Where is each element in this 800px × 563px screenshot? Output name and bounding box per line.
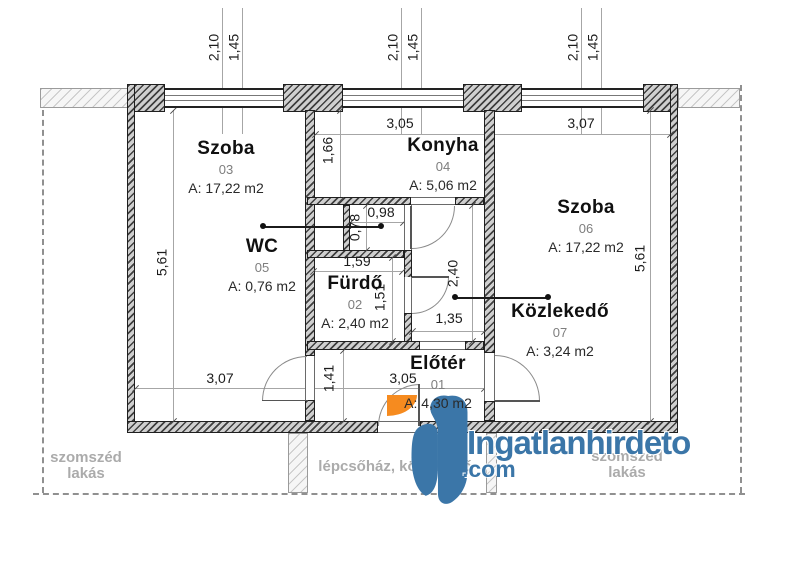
- room-name: Előtér: [404, 354, 472, 374]
- room-name: Közlekedő: [511, 302, 609, 322]
- room-name: Konyha: [407, 136, 478, 156]
- dimension-line: [650, 110, 651, 421]
- wall-right: [670, 84, 678, 433]
- label-neighbor-left: szomszéd lakás: [38, 450, 134, 482]
- window: [343, 88, 463, 108]
- dim-window-height: 1,45: [406, 24, 421, 72]
- dim-foyer-depth: 1,41: [322, 355, 337, 403]
- boundary-dashed: [740, 85, 742, 493]
- room-label-kozlekedo: Közlekedő 07 A: 3,24 m2: [511, 302, 609, 359]
- wall-interior: [465, 341, 484, 350]
- dim-bath-width: 1,59: [327, 253, 387, 269]
- dim-window-width: 2,10: [566, 24, 581, 72]
- door-swing: [262, 356, 307, 401]
- room-label-eloter: Előtér 01 A: 4,30 m2: [404, 354, 472, 411]
- room-area: A: 0,76 m2: [228, 279, 296, 294]
- neighbor-wall: [40, 88, 128, 108]
- door-swing: [412, 277, 449, 314]
- wall-interior: [305, 400, 315, 421]
- room-name: Szoba: [188, 139, 264, 159]
- dimension-line: [242, 8, 243, 134]
- room-area: A: 4,30 m2: [404, 396, 472, 411]
- room-name: WC: [228, 237, 296, 257]
- room-name: Fürdő: [321, 274, 389, 294]
- dim-wc-width: 0,98: [351, 204, 411, 220]
- room-area: A: 5,06 m2: [407, 178, 478, 193]
- room-area: A: 2,40 m2: [321, 316, 389, 331]
- door-opening: [411, 197, 455, 205]
- door-opening: [404, 277, 412, 313]
- door-leaf: [495, 400, 540, 402]
- room-area: A: 3,24 m2: [511, 344, 609, 359]
- wall-interior: [455, 197, 484, 205]
- room-number: 04: [407, 160, 478, 174]
- door-swing: [495, 355, 540, 401]
- dim-window-height: 1,45: [227, 24, 242, 72]
- dimension-line: [173, 110, 174, 421]
- dim-room-width: 3,07: [551, 115, 611, 131]
- room-number: 05: [228, 261, 296, 275]
- dimension-line: [222, 8, 223, 134]
- room-number: 03: [188, 163, 264, 177]
- room-number: 07: [511, 326, 609, 340]
- neighbor-wall: [678, 88, 740, 108]
- wall-interior: [305, 110, 315, 356]
- watermark-domain-suffix[interactable]: .com: [462, 456, 516, 483]
- leader-dot: [545, 294, 551, 300]
- dim-hall-width: 1,35: [419, 310, 479, 326]
- dim-hall-depth: 2,40: [446, 250, 461, 298]
- room-area: A: 17,22 m2: [188, 181, 264, 196]
- room-label-szoba-06: Szoba 06 A: 17,22 m2: [548, 198, 624, 255]
- dimension-line: [343, 350, 344, 421]
- dim-kitchen-depth: 1,66: [321, 127, 336, 175]
- dim-window-width: 2,10: [207, 24, 222, 72]
- wall-pier: [283, 84, 343, 112]
- wall-interior: [484, 110, 495, 353]
- door-swing: [412, 206, 455, 249]
- room-label-wc: WC 05 A: 0,76 m2: [228, 237, 296, 294]
- dimension-line: [313, 271, 402, 272]
- boundary-dashed: [33, 493, 745, 495]
- wall-interior: [404, 250, 412, 278]
- dim-room-width: 3,07: [190, 370, 250, 386]
- room-number: 01: [404, 378, 472, 392]
- door-leaf: [262, 400, 308, 401]
- dimension-line: [392, 257, 393, 341]
- room-number: 06: [548, 222, 624, 236]
- room-number: 02: [321, 298, 389, 312]
- leader-dot: [260, 223, 266, 229]
- room-label-furdo: Fürdő 02 A: 2,40 m2: [321, 274, 389, 331]
- door-leaf: [412, 276, 449, 278]
- wall-interior: [484, 401, 495, 421]
- wall-interior: [404, 313, 412, 342]
- room-label-szoba-03: Szoba 03 A: 17,22 m2: [188, 139, 264, 196]
- wall-pier: [463, 84, 522, 112]
- leader-dot: [378, 223, 384, 229]
- room-name: Szoba: [548, 198, 624, 218]
- dim-window-height: 1,45: [586, 24, 601, 72]
- leader-line: [263, 226, 382, 228]
- room-label-konyha: Konyha 04 A: 5,06 m2: [407, 136, 478, 193]
- boundary-dashed: [42, 110, 44, 493]
- floor-plan: 2,10 1,45 2,10 1,45 2,10 1,45 5,61 5,61 …: [0, 0, 800, 563]
- window: [165, 88, 283, 108]
- dimension-line: [340, 110, 341, 200]
- neighbor-wall: [288, 433, 308, 493]
- window: [522, 88, 643, 108]
- dim-kitchen-width: 3,05: [370, 115, 430, 131]
- door-opening: [420, 341, 465, 350]
- room-area: A: 17,22 m2: [548, 240, 624, 255]
- dim-room-depth: 5,61: [633, 235, 648, 283]
- wall-left: [127, 84, 135, 433]
- dim-room-depth: 5,61: [155, 239, 170, 287]
- dimension-line: [412, 331, 484, 332]
- door-opening: [484, 353, 495, 401]
- leader-line: [455, 297, 549, 299]
- dim-window-width: 2,10: [386, 24, 401, 72]
- wall-interior: [307, 341, 420, 350]
